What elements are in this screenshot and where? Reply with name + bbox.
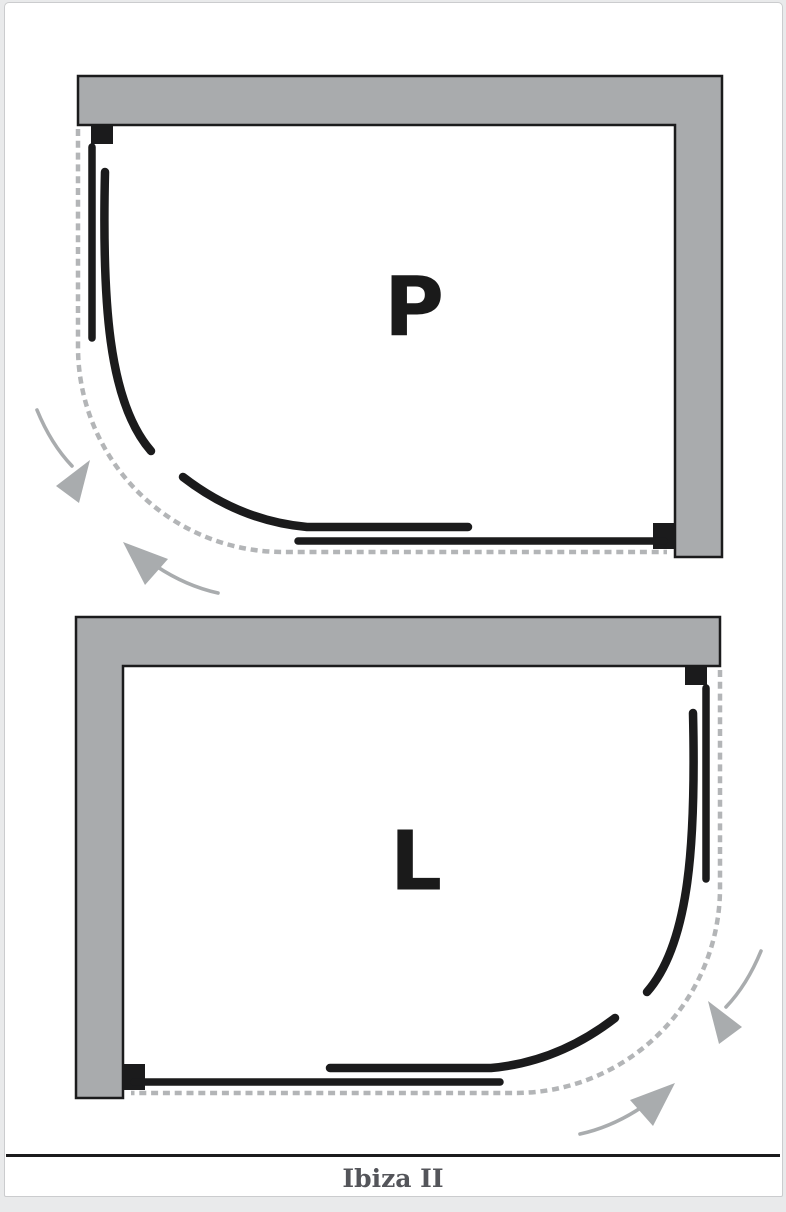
diagram-l-label: L: [390, 822, 442, 904]
page-background: P L Ibiza II: [0, 0, 786, 1212]
diagram-p-linework: [37, 76, 722, 593]
caption-divider: [6, 1154, 780, 1157]
diagram-p-label: P: [384, 268, 444, 350]
product-name-caption: Ibiza II: [0, 1164, 786, 1193]
diagram-canvas: [0, 0, 786, 1212]
